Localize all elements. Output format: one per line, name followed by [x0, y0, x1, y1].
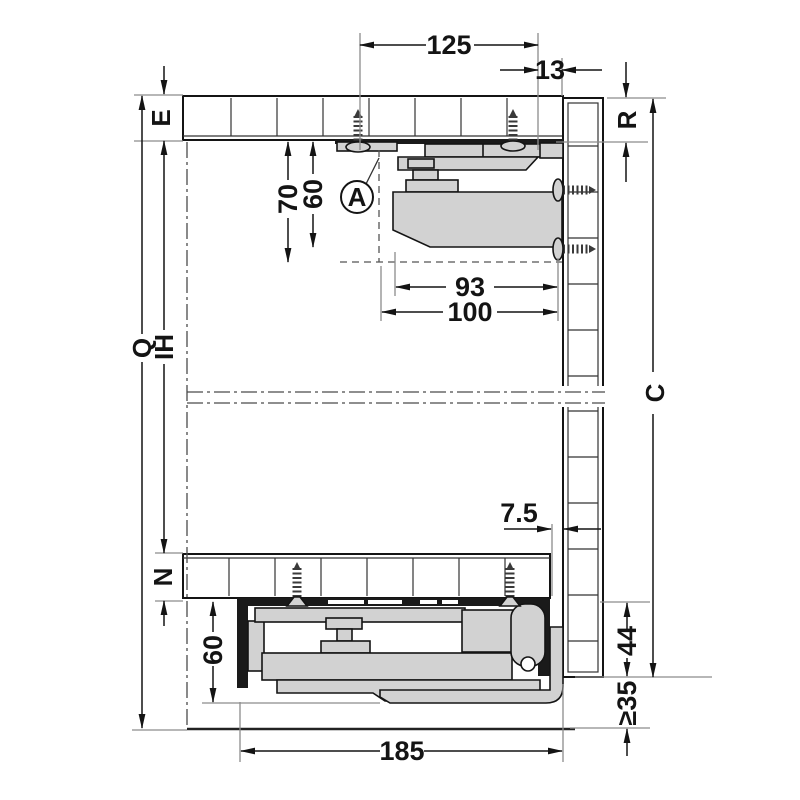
dim-c-label: C: [640, 383, 670, 402]
dim-35-min-label: ≥35: [612, 681, 642, 726]
panel-break-gap: [559, 386, 607, 407]
bottom-runner-mechanism: [248, 604, 563, 703]
dim-185-label: 185: [379, 736, 424, 766]
dim-r-label: R: [612, 110, 642, 129]
dim-125-label: 125: [426, 30, 471, 60]
detail-marker-a-label: A: [348, 182, 367, 212]
top-panel: [183, 96, 563, 140]
dim-n-label: N: [148, 568, 178, 587]
dim-7-5-label: 7.5: [500, 498, 538, 528]
runner-profile-bar: [262, 653, 512, 680]
technical-drawing-page: A: [0, 0, 800, 800]
dim-100-label: 100: [447, 297, 492, 327]
dim-ih-label: IH: [149, 334, 179, 360]
dim-60-top-label: 60: [298, 179, 328, 209]
drawer-runner-diagram: A: [0, 0, 800, 800]
front-fixing-bracket: [393, 192, 562, 247]
dim-60-bottom-label: 60: [198, 635, 228, 665]
dim-13-label: 13: [535, 55, 565, 85]
bottom-panel: [183, 554, 550, 598]
dim-44-label: 44: [612, 626, 642, 656]
dim-e-label: E: [146, 109, 176, 126]
